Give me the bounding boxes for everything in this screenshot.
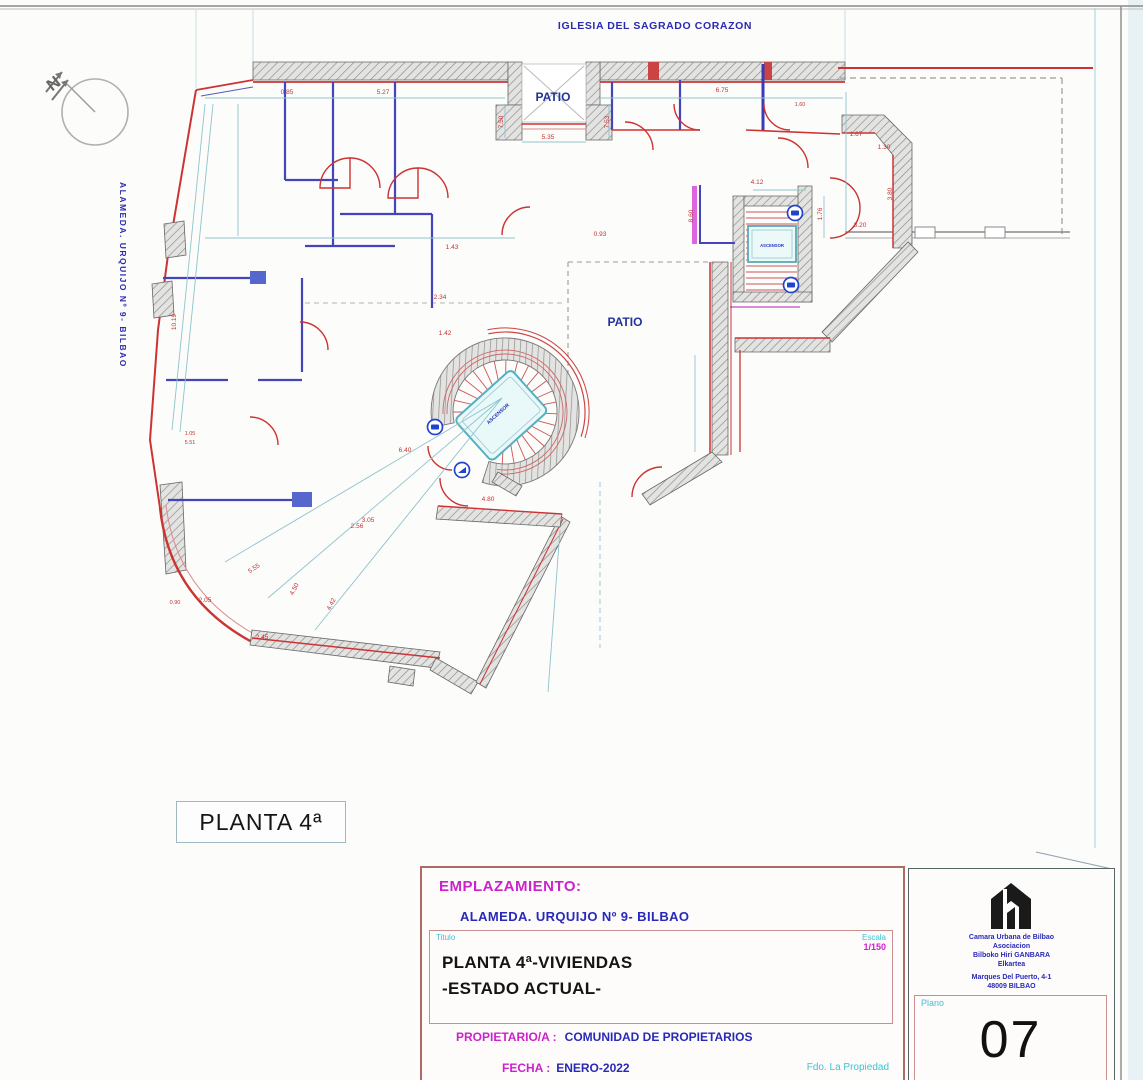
org-line: Elkartea xyxy=(909,960,1114,969)
owner-value: COMUNIDAD DE PROPIETARIOS xyxy=(565,1030,753,1044)
title-box: Titulo Escala 1/150 PLANTA 4ª-VIVIENDAS … xyxy=(429,930,893,1024)
org-address-line: 48009 BILBAO xyxy=(909,982,1114,991)
organization-logo-icon xyxy=(981,883,1041,929)
dimension-label: 3.05 xyxy=(362,517,375,524)
dimension-label: 6.40 xyxy=(399,447,412,454)
organization-name: Camara Urbana de Bilbao Asociacion Bilbo… xyxy=(909,933,1114,969)
dimension-label: 1.30 xyxy=(878,144,891,151)
signature-label: Fdo. La Propiedad xyxy=(807,1062,889,1073)
logo-panel: Camara Urbana de Bilbao Asociacion Bilbo… xyxy=(908,868,1115,1080)
org-address-line: Marques Del Puerto, 4-1 xyxy=(909,973,1114,982)
owner-label: PROPIETARIO/A : xyxy=(456,1030,557,1044)
floor-label-box: PLANTA 4ª xyxy=(176,801,346,843)
dimension-label: 5.51 xyxy=(185,440,196,446)
dimension-label: 1.43 xyxy=(446,244,459,251)
circled-symbol-icon xyxy=(428,420,443,435)
dimension-label: 4.50 xyxy=(289,582,301,597)
circled-symbol-icon xyxy=(784,278,799,293)
adjacent-building-label: IGLESIA DEL SAGRADO CORAZON xyxy=(558,20,752,32)
elevator-label: ASCENSOR xyxy=(760,243,784,248)
plano-field-label: Plano xyxy=(921,998,944,1008)
org-line: Camara Urbana de Bilbao xyxy=(909,933,1114,942)
dimension-label: 1.05 xyxy=(185,431,196,437)
dimension-label: 3.20 xyxy=(854,222,867,229)
dimension-label: 1.67 xyxy=(850,131,863,138)
date-row: FECHA :ENERO-2022 xyxy=(502,1061,630,1075)
right-wing-walls xyxy=(612,64,918,352)
drawing-title-line1: PLANTA 4ª-VIVIENDAS xyxy=(442,953,633,973)
dimension-label: 10.19 xyxy=(171,313,178,330)
plano-box: Plano 07 xyxy=(914,995,1107,1080)
circled-symbol-icon xyxy=(455,463,470,478)
dimension-label: 7.53 xyxy=(604,115,611,128)
dimension-label: 7.50 xyxy=(498,115,505,128)
org-line: Bilboko Hiri GANBARA xyxy=(909,951,1114,960)
street-label: ALAMEDA. URQUIJO Nº 9- BILBAO xyxy=(118,182,128,368)
emplazamiento-label: EMPLAZAMIENTO: xyxy=(439,878,582,895)
dimension-label: 6.75 xyxy=(716,87,729,94)
dimension-label: 5.35 xyxy=(542,134,555,141)
dimension-label: 5.55 xyxy=(247,562,262,575)
date-value: ENERO-2022 xyxy=(556,1061,629,1075)
drawing-title-line2: -ESTADO ACTUAL- xyxy=(442,979,601,999)
dimension-label: 8.60 xyxy=(688,209,695,222)
dimension-label: 3.80 xyxy=(887,187,894,200)
dimension-label: 0.85 xyxy=(281,89,294,96)
dimension-label: 1.42 xyxy=(439,330,452,337)
dimension-label: 4.80 xyxy=(482,496,495,503)
dimension-label: 5.27 xyxy=(377,89,390,96)
dimension-label: 1.76 xyxy=(817,207,824,220)
interior-partitions xyxy=(163,82,432,507)
date-label: FECHA : xyxy=(502,1061,550,1075)
title-block: EMPLAZAMIENTO: ALAMEDA. URQUIJO Nº 9- BI… xyxy=(420,866,905,1080)
dimension-label: 1.60 xyxy=(795,102,806,108)
drawing-sheet: PATIOPATIOASCENSORASCENSORN0.855.276.751… xyxy=(0,0,1143,1080)
floor-label: PLANTA 4ª xyxy=(199,809,322,836)
terrace xyxy=(838,68,1093,238)
dimension-label: 0.90 xyxy=(170,600,181,606)
dimension-label: 2.34 xyxy=(434,294,447,301)
escala-field-label: Escala xyxy=(862,933,886,942)
patio-center-label: PATIO xyxy=(608,315,643,329)
organization-address: Marques Del Puerto, 4-1 48009 BILBAO xyxy=(909,973,1114,991)
dimension-label: 2.05 xyxy=(199,597,212,604)
site-address: ALAMEDA. URQUIJO Nº 9- BILBAO xyxy=(460,909,689,924)
dimension-label: 2.56 xyxy=(351,523,364,530)
dimension-label: 2.45 xyxy=(256,634,269,641)
patio-top-label: PATIO xyxy=(536,90,571,104)
circled-symbol-icon xyxy=(788,206,803,221)
dimension-label: 4.12 xyxy=(751,179,764,186)
sheet-number: 07 xyxy=(915,1010,1106,1070)
dimension-label: 0.93 xyxy=(594,231,607,238)
owner-row: PROPIETARIO/A :COMUNIDAD DE PROPIETARIOS xyxy=(456,1030,752,1044)
org-line: Asociacion xyxy=(909,942,1114,951)
titulo-field-label: Titulo xyxy=(436,933,455,942)
scale-value: 1/150 xyxy=(863,942,886,952)
